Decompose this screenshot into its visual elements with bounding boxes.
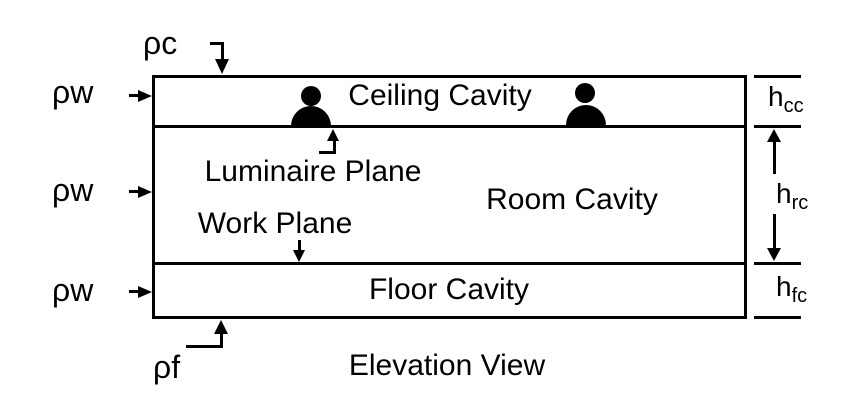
arrow-up-icon	[767, 129, 781, 142]
work-plane-line	[152, 262, 747, 265]
arrow-right-icon	[138, 90, 152, 102]
arrow-up-icon	[214, 320, 228, 334]
dimension-tick	[754, 125, 801, 128]
dim-base: h	[776, 271, 792, 302]
ceiling-reflectance-label: ρc	[143, 27, 177, 59]
dimension-tick	[754, 75, 801, 78]
dimension-tick	[754, 316, 801, 319]
work-plane-label: Work Plane	[198, 209, 353, 239]
arrow-right-icon	[138, 286, 152, 298]
luminaire-plane-label: Luminaire Plane	[205, 157, 422, 187]
dim-sub: cc	[784, 95, 804, 117]
wall-reflectance-label: ρw	[52, 76, 93, 108]
arrow-right-icon	[138, 186, 152, 198]
luminaire-plane-line	[152, 125, 747, 128]
arrow-down-icon	[215, 59, 229, 74]
floor-reflectance-label: ρf	[153, 351, 180, 383]
dim-base: h	[768, 81, 784, 112]
arrow-up-icon	[327, 129, 339, 141]
arrow-down-icon	[293, 250, 305, 262]
ceiling-cavity-height-label: hcc	[768, 83, 804, 116]
room-cavity-label: Room Cavity	[486, 185, 658, 215]
luminaire-head-icon	[575, 83, 595, 103]
elevation-view-diagram: Ceiling Cavity Room Cavity Floor Cavity …	[0, 0, 863, 405]
wall-reflectance-label: ρw	[52, 274, 93, 306]
dim-base: h	[776, 178, 792, 209]
dim-sub: rc	[792, 192, 809, 214]
floor-cavity-label: Floor Cavity	[369, 275, 529, 305]
dim-sub: fc	[792, 285, 808, 307]
ceiling-cavity-label: Ceiling Cavity	[348, 81, 531, 111]
arrow-down-icon	[767, 248, 781, 261]
floor-cavity-height-label: hfc	[776, 273, 807, 306]
room-cavity-height-label: hrc	[776, 180, 808, 213]
wall-reflectance-label: ρw	[52, 174, 93, 206]
dimension-tick	[754, 262, 801, 265]
diagram-caption: Elevation View	[349, 351, 545, 381]
luminaire-head-icon	[301, 86, 321, 106]
